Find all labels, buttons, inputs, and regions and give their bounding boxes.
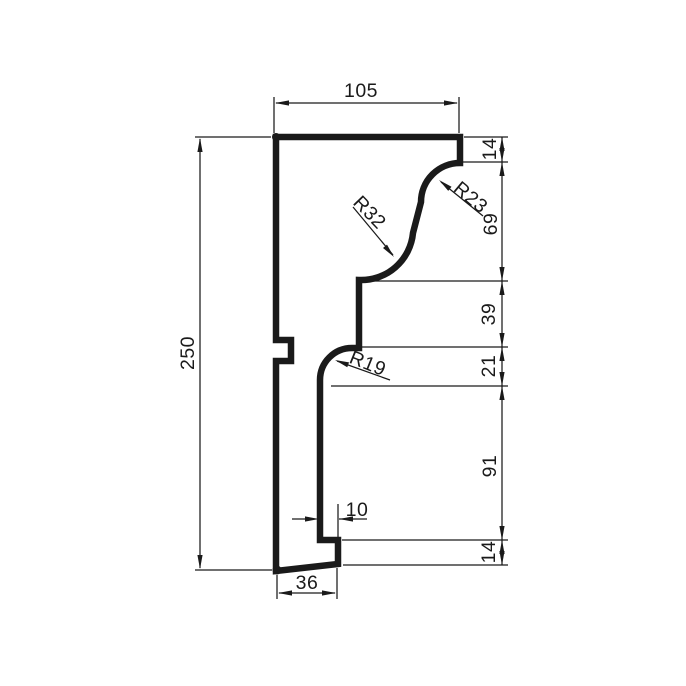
dim-label-right-14-top: 14	[479, 138, 501, 161]
dim-label-right-14-bottom: 14	[478, 541, 500, 564]
arrow-chain-21-up	[499, 347, 504, 361]
arrow-leader-r32	[383, 245, 396, 259]
dim-label-right-21: 21	[478, 355, 500, 378]
arrow-105-left	[275, 100, 289, 105]
arrow-chain-91-down	[499, 526, 504, 540]
arrow-chain-39-down	[499, 333, 504, 347]
arrow-chain-91-up	[499, 386, 504, 400]
dim-label-top-width: 105	[344, 80, 378, 102]
arrow-105-right	[444, 100, 458, 105]
arrow-chain-39-up	[499, 281, 504, 295]
arrow-chain-69-up	[499, 162, 504, 176]
arrow-chain-21-down	[499, 372, 504, 386]
corner-dot-bottom-left	[273, 566, 282, 575]
radius-label-r19: R19	[346, 347, 389, 381]
corner-dot-top-left	[272, 133, 280, 141]
dim-label-total-height: 250	[177, 336, 199, 370]
dim-label-step-width: 10	[346, 499, 369, 521]
drawing-canvas: 1052501469392191141036R32R23R19	[0, 0, 686, 686]
arrow-chain-69-down	[499, 267, 504, 281]
arrow-36-right	[322, 590, 336, 595]
arrow-250-bottom	[197, 555, 202, 569]
arrow-36-left	[278, 590, 292, 595]
technical-drawing: 1052501469392191141036R32R23R19	[0, 0, 686, 686]
dim-label-bottom-width: 36	[296, 572, 319, 594]
dim-label-right-69: 69	[480, 213, 502, 236]
dim-label-right-39: 39	[478, 303, 500, 326]
arrow-chain-14b-down	[499, 551, 504, 565]
arrow-250-top	[197, 138, 202, 152]
radius-label-r23: R23	[449, 177, 492, 218]
dim-label-right-91: 91	[479, 455, 501, 478]
arrow-leader-r23	[437, 178, 451, 191]
radius-label-r32: R32	[349, 192, 391, 234]
